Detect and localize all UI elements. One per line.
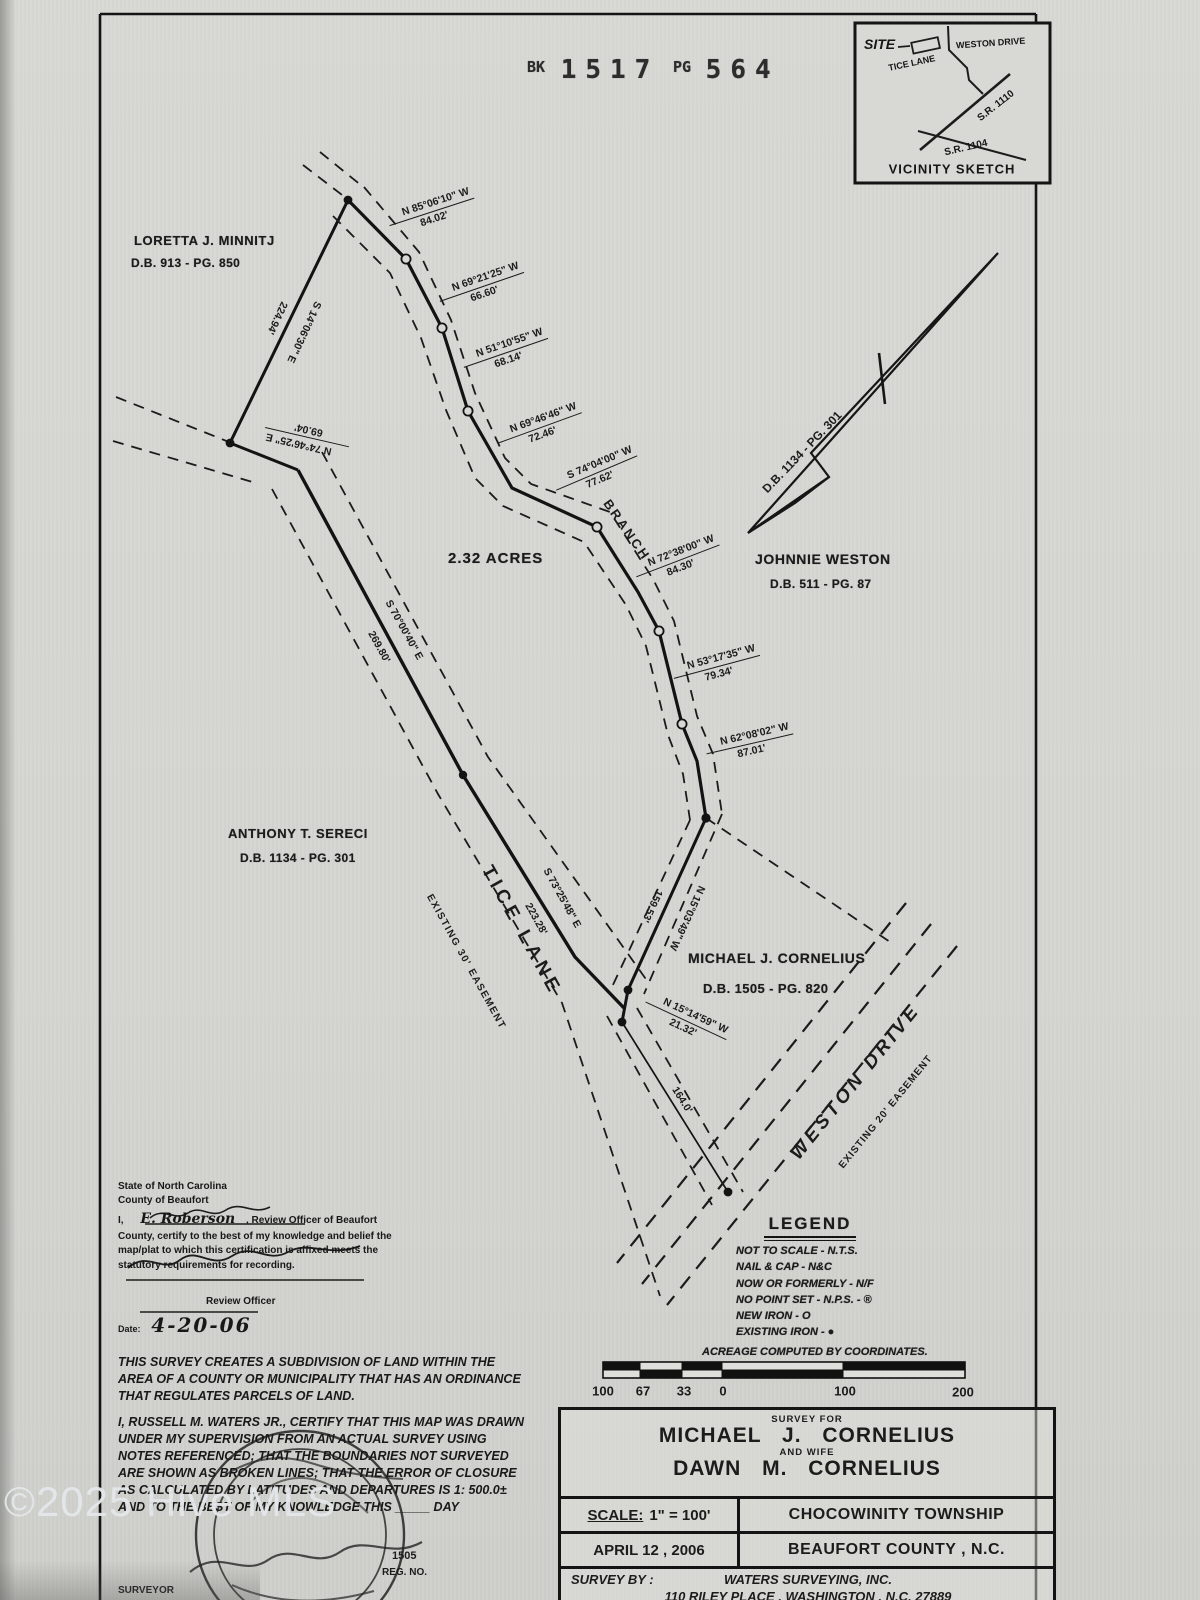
legend-footer: ACREAGE COMPUTED BY COORDINATES. (702, 1345, 972, 1359)
legend-item: NOW OR FORMERLY - N/F (736, 1277, 972, 1291)
title-block: SURVEY FOR MICHAEL J. CORNELIUS AND WIFE… (558, 1407, 1056, 1600)
scan-corner-shadow (0, 1560, 260, 1600)
title-block-clients: SURVEY FOR MICHAEL J. CORNELIUS AND WIFE… (561, 1410, 1053, 1499)
cert-body-2: map/plat to which this certification is … (118, 1244, 448, 1258)
cert-i: I, (118, 1215, 124, 1226)
owner-minnitj-deed: D.B. 913 - PG. 850 (131, 256, 240, 270)
scalebar-label-33: 33 (677, 1384, 691, 1399)
owner-weston-deed: D.B. 511 - PG. 87 (770, 577, 872, 591)
scalebar-label-100r: 100 (834, 1384, 856, 1399)
cert-body-3: statutory requirements for recording. (118, 1259, 448, 1273)
subdivision-note: THIS SURVEY CREATES A SUBDIVISION OF LAN… (118, 1354, 533, 1405)
recording-stamp: BK 1517 PG 564 (527, 55, 780, 85)
scale-bar (603, 1362, 965, 1378)
client-name-2: DAWN M. CORNELIUS (561, 1458, 1053, 1480)
survey-plat-page: BK 1517 PG 564 SITE TICE LANE WESTON DRI… (0, 0, 1200, 1600)
cert-date-label: Date: (118, 1324, 141, 1334)
scalebar-label-100l: 100 (592, 1384, 614, 1399)
stamp-bk-label: BK (527, 58, 545, 76)
cert-officer-line: I, E. Roberson , Review Officer of Beauf… (118, 1210, 448, 1230)
vicinity-sketch-title: VICINITY SKETCH (889, 162, 1016, 177)
seal-reg-number: 1505 (392, 1550, 416, 1562)
title-block-scale-row: SCALE: 1" = 100' CHOCOWINITY TOWNSHIP (561, 1499, 1053, 1534)
survey-for-label: SURVEY FOR (561, 1410, 1053, 1425)
survey-date-cell: APRIL 12 , 2006 (561, 1534, 740, 1566)
acreage-label: 2.32 ACRES (448, 550, 543, 567)
firm-address: 110 RILEY PLACE , WASHINGTON , N.C. 2788… (571, 1589, 1045, 1600)
cert-date-value: 4-20-06 (151, 1313, 251, 1337)
vicinity-site-label: SITE (864, 36, 895, 52)
scalebar-label-0: 0 (719, 1384, 726, 1399)
cert-county-line: County of Beaufort (118, 1194, 448, 1208)
scale-value: 1" = 100' (649, 1507, 710, 1524)
legend-item: NEW IRON - O (736, 1309, 972, 1323)
client-name-1: MICHAEL J. CORNELIUS (561, 1425, 1053, 1447)
county-cell: BEAUFORT COUNTY , N.C. (740, 1534, 1053, 1566)
legend-item: NOT TO SCALE - N.T.S. (736, 1244, 972, 1258)
legend: LEGEND NOT TO SCALE - N.T.S. NAIL & CAP … (712, 1214, 972, 1359)
mls-watermark: ©2025 Hive MLS (4, 1478, 336, 1526)
new-iron-markers (401, 254, 686, 728)
owner-cornelius-name: MICHAEL J. CORNELIUS (688, 950, 865, 966)
stamp-page-number: 564 (706, 55, 780, 85)
seal-reg-label: REG. NO. (382, 1567, 427, 1578)
owner-sereci-deed: D.B. 1134 - PG. 301 (240, 851, 356, 865)
cert-state-line: State of North Carolina (118, 1180, 448, 1194)
legend-title: LEGEND (764, 1214, 856, 1238)
north-arrow (748, 253, 998, 533)
cert-officer-name: E. Roberson (140, 1211, 235, 1227)
scalebar-label-200: 200 (952, 1385, 974, 1400)
scale-label: SCALE: (588, 1507, 644, 1524)
cert-officer-suffix: , Review Officer of Beaufort (246, 1215, 377, 1226)
township-cell: CHOCOWINITY TOWNSHIP (740, 1499, 1053, 1531)
stamp-pg-label: PG (673, 58, 691, 76)
cert-officer-title: Review Officer (206, 1295, 448, 1309)
legend-item: EXISTING IRON - ● (736, 1325, 972, 1339)
owner-minnitj-name: LORETTA J. MINNITJ (134, 233, 275, 248)
review-officer-certification: State of North Carolina County of Beaufo… (118, 1180, 448, 1339)
cert-body-1: County, certify to the best of my knowle… (118, 1230, 448, 1244)
scale-cell: SCALE: 1" = 100' (561, 1499, 740, 1531)
title-block-date-row: APRIL 12 , 2006 BEAUFORT COUNTY , N.C. (561, 1534, 1053, 1569)
owner-cornelius-deed: D.B. 1505 - PG. 820 (703, 981, 828, 996)
owner-sereci-name: ANTHONY T. SERECI (228, 826, 368, 841)
legend-item: NO POINT SET - N.P.S. - ® (736, 1293, 972, 1307)
title-block-firm-row: SURVEY BY : WATERS SURVEYING, INC. 110 R… (561, 1569, 1053, 1600)
owner-weston-name: JOHNNIE WESTON (755, 551, 891, 567)
legend-item: NAIL & CAP - N&C (736, 1260, 972, 1274)
scalebar-label-67: 67 (636, 1384, 650, 1399)
stamp-book-number: 1517 (561, 55, 660, 85)
